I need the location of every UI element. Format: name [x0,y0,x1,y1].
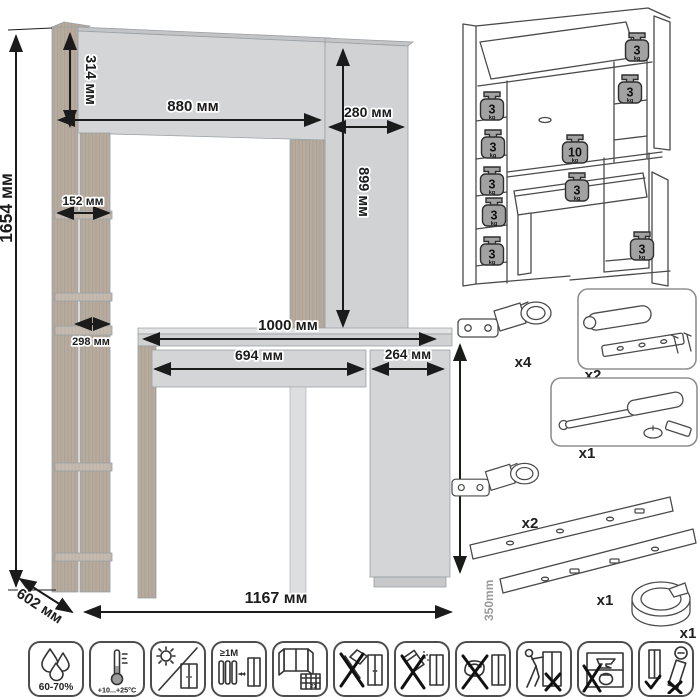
svg-text:kg: kg [491,221,497,227]
load-weight: 3kg [481,92,504,121]
hardware-cable-grommet: x1 [632,582,696,642]
gas-lift-qty: x1 [579,445,596,462]
care-icon-temperature: +10...+25°C [89,641,145,697]
load-weight: 10kg [563,135,588,164]
load-weight: 3kg [566,173,589,202]
load-weight: 3kg [631,232,654,261]
dim-drawer-width-label: 694 мм [235,347,283,363]
shelf-board [55,553,112,561]
care-icon-no-wet-cleaning [455,641,511,697]
hutch-front [78,31,325,140]
furniture-spec-sheet: 1654 мм 314 мм 880 мм 280 мм 899 мм 152 … [0,0,700,700]
temperature-label: +10...+25°C [98,686,136,695]
svg-text:kg: kg [572,158,578,164]
care-icon-no-sunlight [150,641,206,697]
care-icon-humidity: 60-70% [28,641,84,697]
load-weight: 3kg [481,237,504,266]
load-weight: 3kg [483,198,506,227]
dim-right-column-height-label: 899 мм [355,167,371,217]
cable-hole [539,118,551,123]
svg-text:kg: kg [627,98,633,104]
dim-hutch-height-label: 314 мм [82,55,98,105]
sun-icon [161,651,171,661]
svg-text:kg: kg [634,56,640,62]
svg-text:kg: kg [574,196,580,202]
hardware-hinge-x2: x2 [452,463,538,532]
dim-upper-shelf-depth-label: 152 мм [62,194,103,208]
load-limit-diagram: 3kg 3kg 3kg 3kg 3kg 3kg [430,0,700,300]
care-icon-heater-distance: ≥1M [211,641,267,697]
care-icon-no-impact [333,641,389,697]
svg-text:kg: kg [490,153,496,159]
shelf-board [55,326,112,335]
calendar-day-label: 21 [310,684,316,690]
left-side-panel [52,27,78,592]
open-door [652,172,668,286]
main-dimension-drawing: 1654 мм 314 мм 880 мм 280 мм 899 мм 152 … [0,0,470,640]
dim-base-door-width-label: 264 мм [385,347,431,362]
calendar-icon: 21 [301,674,320,690]
care-icon-do-not-overload [577,641,633,697]
furniture-front-view [52,22,452,598]
opening-right-upright [290,140,325,331]
slide-length-label: 350mm [482,580,496,621]
hardware-panel: x4 x2 [450,283,700,643]
dim-total-width-label: 1167 мм [245,590,308,607]
grommet-qty: x1 [680,625,697,642]
hardware-hinge-x4: x4 [458,302,551,371]
dim-lower-shelf-depth-label: 298 мм [72,336,110,348]
hinge-x4-qty: x4 [515,354,532,371]
care-icons-row: 60-70% +10...+25°C [28,641,694,697]
desk-inner-panel [290,387,306,598]
dim-desktop-width-label: 1000 мм [258,317,318,334]
humidity-label: 60-70% [39,682,74,693]
care-icon-ventilation: 21 [272,641,328,697]
base-cabinet-door [370,350,450,577]
radiator-icon [219,661,237,684]
svg-text:kg: kg [489,115,495,121]
svg-text:kg: kg [489,260,495,266]
dim-hutch-width-label: 880 мм [167,98,218,115]
care-icon-transport-upright [638,641,694,697]
hardware-damper-kit: x2 [578,289,696,384]
shelf-board [55,293,112,301]
base-cabinet-plinth [374,577,446,587]
care-icon-do-not-drag [516,641,572,697]
dim-total-height: 1654 мм [0,28,56,590]
care-icon-no-abrasives [394,641,450,697]
person-icon [526,650,544,688]
svg-text:kg: kg [489,190,495,196]
load-weight: 3kg [481,167,504,196]
load-weight: 3kg [482,130,505,159]
slides-qty: x1 [597,592,614,609]
heater-distance-label: ≥1M [220,648,238,659]
shelf-board [55,463,112,471]
dim-top-right-width-label: 280 мм [344,104,392,120]
hardware-gas-lift: x1 [551,378,697,462]
svg-text:kg: kg [639,255,645,261]
load-weight: 3kg [626,33,649,62]
dim-total-height-label: 1654 мм [0,173,16,243]
load-weight: 3kg [619,75,642,104]
